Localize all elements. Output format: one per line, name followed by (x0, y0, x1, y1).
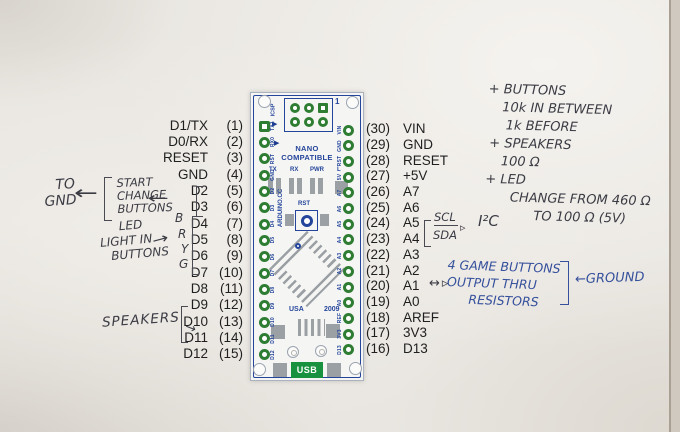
pin-name: +5V (403, 168, 427, 183)
wire-color-letter: B (175, 211, 183, 225)
annotation-ground: ←GROUND (575, 270, 645, 287)
pin-label-row: (24)A5 (366, 215, 496, 231)
maker-label: ARDUINO.CC (278, 180, 284, 236)
icsp-label: ICSP (270, 104, 276, 117)
pin-number: (4) (208, 167, 243, 182)
pin-number: (12) (208, 297, 243, 312)
pin-label-row: D8(11) (124, 280, 243, 296)
wire-color-letter: Y (181, 242, 188, 256)
usa-label: USA (289, 306, 304, 313)
pin-name: 3V3 (403, 325, 427, 340)
note-line: TO 100 Ω (5V) (533, 208, 650, 229)
pin-number: (14) (208, 330, 243, 345)
through-hole-pad (343, 125, 354, 136)
pin-number: (22) (366, 247, 403, 262)
reset-button-ring (301, 215, 313, 227)
pin-number: (25) (366, 200, 403, 215)
pin-number: (3) (208, 150, 243, 165)
edge-pin-silk-label: D10 (270, 313, 276, 331)
led-silk-label: PWR (310, 167, 324, 173)
pin-number: (24) (366, 215, 403, 230)
pin-name: D11 (124, 330, 208, 345)
pin-name: RESET (403, 153, 448, 168)
arrow-ground-icon: ← (575, 272, 586, 287)
bracket-a5-a4 (424, 220, 431, 247)
pin-label-row: D0/RX(2) (124, 133, 243, 149)
arduino-nano-board: ICSP 1 ▶ ▶ NANO COMPATIBLE TXRXPWRL RST … (250, 92, 364, 381)
edge-pin-silk-label: D5 (270, 231, 276, 249)
usb-text: USB (297, 365, 318, 375)
pin-number: (23) (366, 231, 403, 246)
pin-name: A6 (403, 200, 420, 215)
edge-pin-silk-label: D12 (270, 346, 276, 364)
edge-pin-silk-label: D8 (270, 281, 276, 299)
pin-number: (9) (208, 248, 243, 263)
annotation-to-gnd: TO GND (43, 176, 77, 210)
pin-name: A4 (403, 231, 420, 246)
pin-number: (20) (366, 278, 403, 293)
pin-name: D12 (124, 346, 208, 361)
pin-label-row: RESET(3) (124, 150, 243, 166)
edge-pin-silk-label: RST (270, 150, 276, 168)
mounting-hole (346, 96, 359, 109)
through-hole-pad (259, 170, 270, 181)
paper-edge (669, 0, 680, 432)
pin-number: (30) (366, 121, 403, 136)
icsp-pad (318, 103, 328, 113)
annotation-scl: SCL (434, 210, 458, 226)
arrow-buttons-to-pins-icon: ← (148, 189, 169, 207)
through-hole-pad (343, 313, 354, 324)
pin-number: (1) (208, 118, 243, 133)
pin-number: (16) (366, 341, 403, 356)
annotation-game-buttons: 4 GAME BUTTONS OUTPUT THRU RESISTORS (446, 256, 561, 311)
pin-name: D13 (403, 341, 428, 356)
pin-number: (11) (208, 281, 243, 296)
reset-label: RST (298, 201, 310, 207)
pin-name: A1 (403, 278, 420, 293)
icsp-pad (304, 103, 314, 113)
icsp-pad (290, 103, 300, 113)
mcu-chip-body (284, 246, 329, 291)
reset-button (295, 210, 318, 231)
pin-label-row: (25)A6 (366, 199, 496, 215)
annotation-notes-block: + BUTTONS10k IN BETWEEN1k BEFORE+ SPEAKE… (482, 81, 654, 229)
pin-number: (15) (208, 346, 243, 361)
pin-label-row: D1/TX(1) (124, 117, 243, 133)
through-hole-pad (343, 266, 354, 277)
bracket-d10-d11 (181, 306, 188, 343)
to-gnd-line: TO (55, 176, 76, 193)
bracket-game-buttons (560, 261, 569, 305)
annotation-sda: SDA (433, 228, 457, 242)
pin-name: A3 (403, 247, 420, 262)
pin-name: A0 (403, 294, 420, 309)
through-hole-pad (259, 317, 270, 328)
pin-label-row: D12(15) (124, 346, 243, 362)
pin-name: RESET (124, 150, 208, 165)
bracket-d4-d7 (192, 216, 199, 275)
smd-pad (310, 178, 315, 194)
arrow-to-gnd-icon: ← (74, 182, 98, 204)
smd-pad (297, 178, 302, 194)
pin-number: (19) (366, 294, 403, 309)
pin-name: A7 (403, 184, 420, 199)
through-hole-pad (343, 172, 354, 183)
through-hole-pad (259, 219, 270, 230)
through-hole-pad (259, 186, 270, 197)
right-pin-label-column: (30)VIN(29)GND(28)RESET(27)+5V(26)A7(25)… (366, 121, 496, 356)
board-name-line2: COMPATIBLE (281, 153, 332, 162)
pin-number: (7) (208, 216, 243, 231)
pin-number: (27) (366, 168, 403, 183)
note-line: CHANGE FROM 460 Ω (510, 189, 651, 211)
silk-dot (295, 243, 301, 249)
pin-name: VIN (403, 121, 426, 136)
pin-name: D0/RX (124, 134, 208, 149)
edge-pin-silk-label: D11 (270, 330, 276, 348)
through-hole-pad (259, 137, 270, 148)
mounting-hole (349, 362, 362, 375)
through-hole-pad (259, 268, 270, 279)
bracket-start-buttons (104, 177, 112, 221)
pin1-marker: 1 (335, 97, 339, 106)
through-hole-pad (343, 219, 354, 230)
through-hole-pad (343, 329, 354, 340)
board-name-line1: NANO (295, 144, 318, 153)
pin-number: (28) (366, 153, 403, 168)
edge-pin-silk-label: D7 (270, 264, 276, 282)
small-hole (287, 346, 299, 358)
pin-number: (17) (366, 325, 403, 340)
through-hole-pad (343, 156, 354, 167)
pin-label-row: (16)D13 (366, 341, 496, 357)
smd-pad (320, 214, 329, 226)
smd-pad (327, 363, 341, 377)
pin-label-row: (29)GND (366, 137, 496, 153)
through-hole-pad (259, 235, 270, 246)
smd-pad (285, 214, 294, 226)
pin-name: D1/TX (124, 118, 208, 133)
icsp-pad (304, 117, 314, 127)
pin-label-row: (18)AREF (366, 309, 496, 325)
pin-name: D8 (124, 281, 208, 296)
led-silk-label: RX (290, 167, 298, 173)
pin-number: (6) (208, 199, 243, 214)
ground-text: GROUND (586, 270, 645, 287)
pin-number: (29) (366, 137, 403, 152)
pin-number: (18) (366, 310, 403, 325)
pin-number: (26) (366, 184, 403, 199)
icsp-header (284, 98, 333, 132)
pin-number: (2) (208, 134, 243, 149)
through-hole-pad (259, 284, 270, 295)
edge-pin-silk-label: D2 (270, 182, 276, 200)
small-hole (315, 345, 327, 357)
smd-pad (289, 178, 294, 194)
pin-number: (21) (366, 263, 403, 278)
pin-label-row: (27)+5V (366, 168, 496, 184)
pin-name: AREF (403, 310, 439, 325)
through-hole-pad (343, 203, 354, 214)
game-line: RESISTORS (468, 291, 559, 311)
pin-label-row: (26)A7 (366, 184, 496, 200)
arrow-i2c-icon: ▹ (460, 221, 466, 234)
pin-number: (5) (208, 183, 243, 198)
through-hole-pad (259, 121, 270, 132)
pin-label-row: (17)3V3 (366, 325, 496, 341)
usb-connector-label: USB (291, 362, 323, 378)
pin-label-row: (30)VIN (366, 121, 496, 137)
icsp-pad (290, 117, 300, 127)
pin-number: (10) (208, 265, 243, 280)
pin-number: (13) (208, 314, 243, 329)
mounting-hole (253, 363, 266, 376)
icsp-pad (318, 117, 328, 127)
mounting-hole (258, 95, 271, 108)
pin-name: GND (403, 137, 433, 152)
through-hole-pad (343, 282, 354, 293)
smd-pad (318, 178, 323, 194)
pin-name: A5 (403, 215, 420, 230)
through-hole-pad (259, 333, 270, 344)
pin-number: (8) (208, 232, 243, 247)
edge-pin-silk-label: D13 (337, 341, 343, 359)
smd-pad-strip (298, 319, 325, 336)
wire-color-letter: G (179, 257, 188, 271)
pin-label-row: (23)A4 (366, 231, 496, 247)
wire-color-letter: R (178, 227, 186, 241)
edge-pin-silk-label: RX0 (270, 133, 276, 151)
smd-pad (273, 363, 287, 377)
bracket-d2-d3 (196, 186, 203, 217)
to-gnd-line: GND (44, 192, 77, 210)
pin-name: A2 (403, 263, 420, 278)
pinout-diagram-photo: D1/TX(1)D0/RX(2)RESET(3)GND(4)D2(5)D3(6)… (0, 0, 680, 432)
pin-label-row: (28)RESET (366, 152, 496, 168)
